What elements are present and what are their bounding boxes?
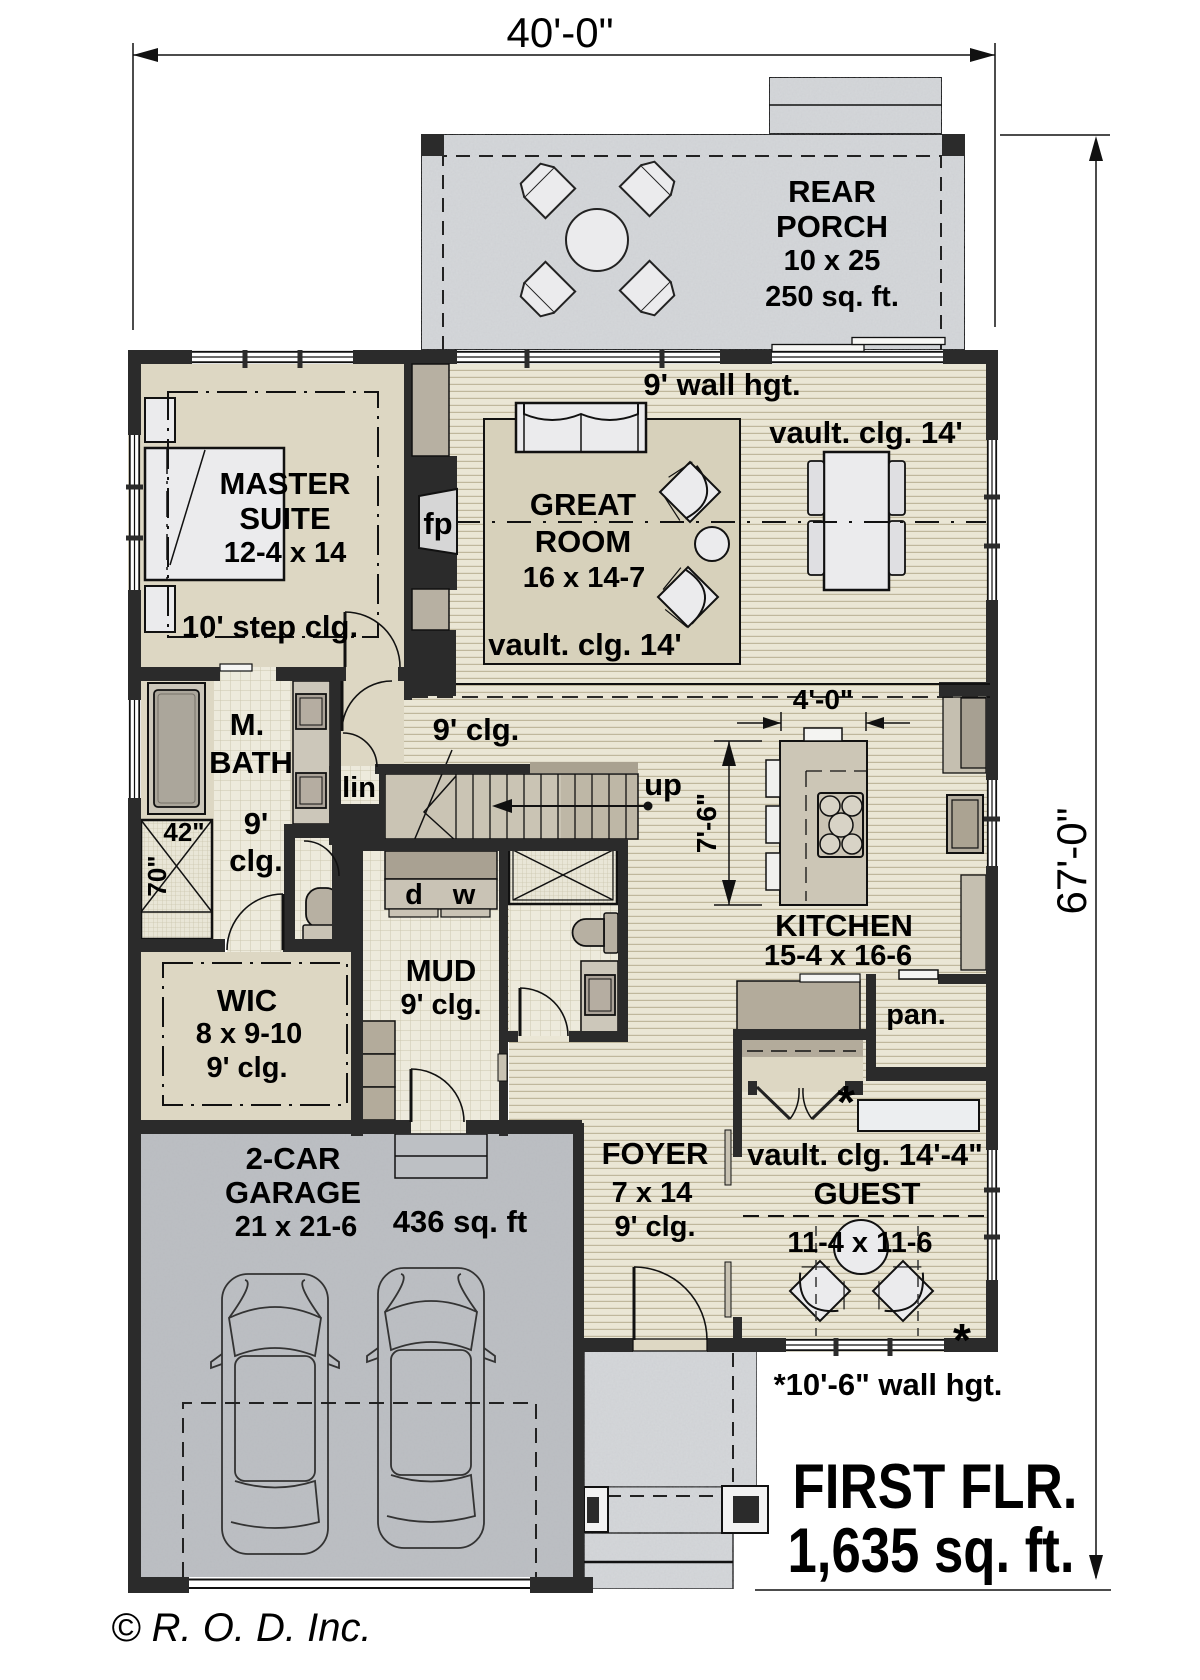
svg-text:GARAGE: GARAGE (225, 1175, 361, 1210)
svg-text:w: w (452, 879, 476, 911)
svg-text:2-CAR: 2-CAR (246, 1141, 341, 1176)
svg-text:GUEST: GUEST (814, 1176, 921, 1211)
svg-text:vault. clg. 14': vault. clg. 14' (769, 415, 962, 450)
svg-text:FIRST FLR.: FIRST FLR. (793, 1452, 1078, 1522)
svg-text:8 x 9-10: 8 x 9-10 (196, 1018, 302, 1050)
svg-text:clg.: clg. (229, 843, 282, 878)
svg-text:7'-6": 7'-6" (691, 793, 722, 853)
svg-text:436 sq. ft: 436 sq. ft (393, 1204, 527, 1239)
svg-text:MUD: MUD (406, 953, 477, 988)
svg-text:up: up (644, 767, 682, 802)
svg-text:9' clg.: 9' clg. (206, 1052, 287, 1084)
svg-text:9' wall hgt.: 9' wall hgt. (643, 367, 800, 402)
svg-text:42": 42" (163, 817, 204, 847)
svg-text:250 sq. ft.: 250 sq. ft. (765, 281, 899, 313)
svg-text:11-4 x 11-6: 11-4 x 11-6 (787, 1227, 932, 1259)
svg-text:PORCH: PORCH (776, 209, 888, 244)
svg-text:4'-0": 4'-0" (793, 684, 853, 715)
svg-text:lin: lin (342, 772, 376, 804)
svg-text:FOYER: FOYER (602, 1136, 709, 1171)
svg-text:KITCHEN: KITCHEN (775, 908, 913, 943)
svg-text:fp: fp (423, 506, 452, 541)
svg-text:SUITE: SUITE (239, 501, 330, 536)
svg-text:9': 9' (244, 806, 269, 841)
svg-text:9' clg.: 9' clg. (433, 712, 520, 747)
svg-text:*: * (953, 1314, 971, 1366)
svg-text:67'-0": 67'-0" (1048, 808, 1095, 915)
svg-text:9' clg.: 9' clg. (614, 1211, 695, 1243)
svg-text:40'-0": 40'-0" (507, 9, 614, 56)
svg-text:vault. clg. 14': vault. clg. 14' (488, 627, 681, 662)
svg-text:21 x 21-6: 21 x 21-6 (235, 1211, 358, 1243)
svg-text:1,635 sq. ft.: 1,635 sq. ft. (788, 1516, 1075, 1586)
svg-text:16 x 14-7: 16 x 14-7 (523, 562, 646, 594)
svg-text:REAR: REAR (788, 174, 876, 209)
svg-text:ROOM: ROOM (535, 524, 631, 559)
svg-text:vault. clg. 14'-4": vault. clg. 14'-4" (747, 1137, 983, 1172)
svg-text:© R. O. D. Inc.: © R. O. D. Inc. (111, 1606, 372, 1650)
svg-text:10 x 25: 10 x 25 (784, 245, 881, 277)
svg-text:70": 70" (142, 855, 172, 896)
svg-text:*10'-6" wall hgt.: *10'-6" wall hgt. (774, 1367, 1003, 1402)
svg-text:GREAT: GREAT (530, 487, 636, 522)
svg-text:9' clg.: 9' clg. (400, 989, 481, 1021)
svg-text:d: d (405, 879, 423, 911)
svg-text:12-4 x 14: 12-4 x 14 (224, 537, 347, 569)
svg-text:7 x 14: 7 x 14 (612, 1177, 693, 1209)
svg-text:10' step clg.: 10' step clg. (182, 609, 358, 644)
svg-text:M.: M. (230, 707, 264, 742)
svg-text:WIC: WIC (217, 983, 277, 1018)
svg-text:15-4 x 16-6: 15-4 x 16-6 (764, 940, 912, 972)
svg-text:pan.: pan. (886, 999, 946, 1031)
svg-text:MASTER: MASTER (220, 466, 351, 501)
svg-text:BATH: BATH (209, 745, 293, 780)
svg-text:*: * (837, 1076, 855, 1128)
